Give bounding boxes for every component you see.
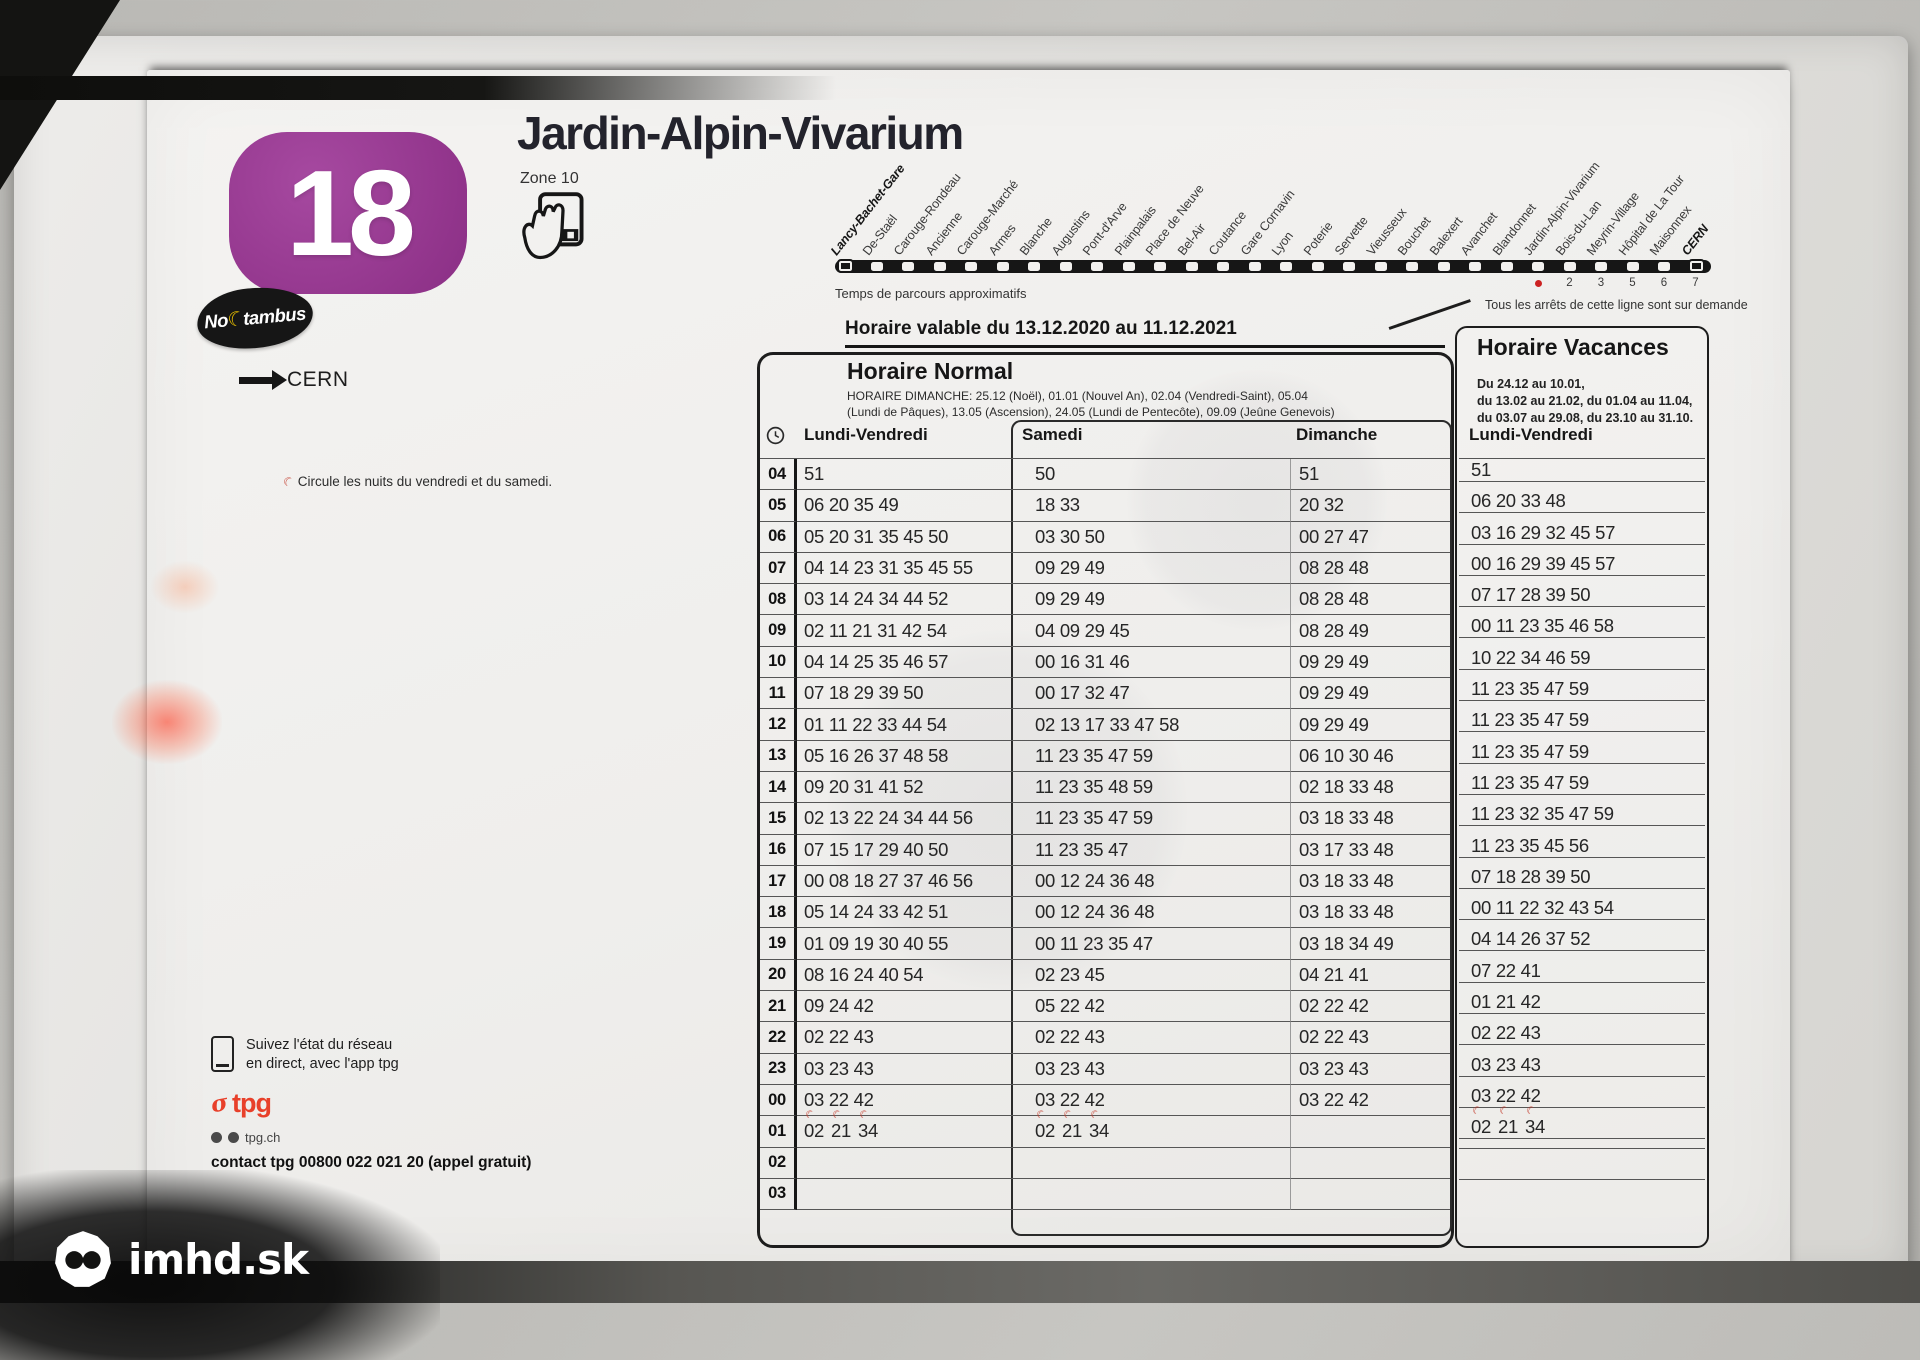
timetable-cell: 09 29 49: [1290, 678, 1450, 709]
timetable-cell: 07 15 17 29 40 50: [797, 835, 1013, 866]
route-stop-marker: [1375, 262, 1387, 271]
vacances-row: 00 11 22 32 43 54: [1459, 897, 1705, 928]
timetable-cell: 02 22 42: [1290, 991, 1450, 1022]
timetable-cell: 02 13 17 33 47 58: [1013, 709, 1290, 740]
timetable-cell: [1013, 1179, 1290, 1210]
timetable-cell: 03 22 42: [1013, 1085, 1290, 1116]
tpg-logo: σ tpg: [211, 1088, 271, 1119]
timetable-row: 1004 14 25 35 46 5700 16 31 4609 29 49: [760, 647, 1450, 678]
timetable-row: 02: [760, 1148, 1450, 1179]
timetable-cell: 07 22 41: [1459, 960, 1705, 983]
timetable-cell: 00 11 23 35 47: [1013, 928, 1290, 959]
timetable-cell: 07 18 28 39 50: [1459, 866, 1705, 889]
route-stop-label: Balexert: [1426, 214, 1464, 258]
timetable-row: 03: [760, 1179, 1450, 1210]
minute-value: ☾02: [1035, 1120, 1055, 1142]
vacances-row: 11 23 35 47 59: [1459, 678, 1705, 709]
timetable-row: 1502 13 22 24 34 44 5611 23 35 47 5903 1…: [760, 803, 1450, 834]
timetable-cell: 04: [760, 459, 797, 490]
route-stop-marker: [1564, 262, 1576, 271]
horaire-normal-title: Horaire Normal: [847, 358, 1013, 385]
timetable-cell: 02 22 43: [1013, 1022, 1290, 1053]
timetable-cell: 03 16 29 32 45 57: [1459, 522, 1705, 545]
route-stop-marker: [1343, 262, 1355, 271]
on-demand-note: Tous les arrêts de cette ligne sont sur …: [1485, 298, 1748, 312]
timetable-cell: 00 11 22 32 43 54: [1459, 897, 1705, 920]
minute-mark: [1532, 277, 1544, 290]
timetable-cell: [1459, 1148, 1705, 1149]
timetable-cell: 09 29 49: [1013, 553, 1290, 584]
route-stop-marker: [965, 262, 977, 271]
timetable-cell: 01 09 19 30 40 55: [797, 928, 1013, 959]
timetable-cell: 11 23 35 48 59: [1013, 772, 1290, 803]
minute-value: ☾34: [858, 1120, 878, 1142]
route-stop-marker: [934, 262, 946, 271]
vacances-row: 11 23 35 47 59: [1459, 709, 1705, 740]
timetable-cell: 06 20 35 49: [797, 490, 1013, 521]
timetable-cell: 03 22 42: [1459, 1085, 1705, 1108]
minute-value: ☾21: [1498, 1116, 1518, 1138]
timetable-cell: 00 12 24 36 48: [1013, 897, 1290, 928]
timetable-cell: 03 18 33 48: [1290, 866, 1450, 897]
timetable-cell: [1290, 1148, 1450, 1179]
timetable-cell: 05 22 42: [1013, 991, 1290, 1022]
app-note-line: en direct, avec l'app tpg: [246, 1055, 399, 1074]
timetable-cell: 00 27 47: [1290, 522, 1450, 553]
timetable-cell: 03 22 42: [797, 1085, 1013, 1116]
timetable-poster: 18 Jardin-Alpin-Vivarium Zone 10 No☾tamb…: [147, 70, 1790, 1273]
route-stop-label: CERN: [1678, 222, 1710, 258]
timetable-cell: 18: [760, 897, 797, 928]
timetable-cell: 11 23 35 47 59: [1013, 741, 1290, 772]
timetable-cell: 02 11 21 31 42 54: [797, 615, 1013, 646]
timetable-rows: 045150510506 20 35 4918 3320 320605 20 3…: [760, 458, 1450, 1210]
website-label: tpg.ch: [245, 1130, 280, 1145]
timetable-cell: 02 22 43: [797, 1022, 1013, 1053]
timetable-cell: 00 11 23 35 46 58: [1459, 615, 1705, 638]
travel-time-note: Temps de parcours approximatifs: [835, 286, 1026, 301]
minute-value: ☾02: [804, 1120, 824, 1142]
timetable-cell: 09 29 49: [1290, 647, 1450, 678]
timetable-cell: 08 28 49: [1290, 615, 1450, 646]
timetable-cell: 09 24 42: [797, 991, 1013, 1022]
timetable-cell: 02 22 43: [1459, 1022, 1705, 1045]
timetable-cell: 03 17 33 48: [1290, 835, 1450, 866]
timetable-cell: 05: [760, 490, 797, 521]
vacances-row: ☾02☾21☾34: [1459, 1116, 1705, 1147]
timetable-cell: ☾02☾21☾34: [1013, 1116, 1290, 1147]
timetable-cell: 04 21 41: [1290, 960, 1450, 991]
timetable-header: Lundi-Vendredi Samedi Dimanche: [760, 422, 1450, 456]
timetable-cell: 08 28 48: [1290, 584, 1450, 615]
route-stop-marker: [1123, 262, 1135, 271]
timetable-cell: 11 23 35 45 56: [1459, 835, 1705, 858]
timetable-cell: 03 18 33 48: [1290, 803, 1450, 834]
timetable-cell: 00 17 32 47: [1013, 678, 1290, 709]
timetable-cell: 11: [760, 678, 797, 709]
route-stop-label: Lyon: [1269, 229, 1296, 258]
vacances-row: 07 17 28 39 50: [1459, 584, 1705, 615]
timetable-row: 04515051: [760, 459, 1450, 490]
vacances-row: 10 22 34 46 59: [1459, 647, 1705, 678]
vacances-row: 00 16 29 39 45 57: [1459, 553, 1705, 584]
timetable-cell: 06 20 33 48: [1459, 490, 1705, 513]
website-row: tpg.ch: [211, 1130, 280, 1145]
timetable-cell: 10 22 34 46 59: [1459, 647, 1705, 670]
route-stop-marker: [1469, 262, 1481, 271]
timetable-cell: 05 14 24 33 42 51: [797, 897, 1013, 928]
note-line: HORAIRE DIMANCHE: 25.12 (Noël), 01.01 (N…: [847, 388, 1335, 404]
route-stop-marker: [1280, 262, 1292, 271]
timetable-cell: 11 23 35 47 59: [1013, 803, 1290, 834]
route-stop-marker: [1028, 262, 1040, 271]
timetable-cell: 11 23 35 47 59: [1459, 678, 1705, 701]
route-stop-label: Armes: [985, 222, 1018, 258]
vacances-row: 06 20 33 48: [1459, 490, 1705, 521]
route-stop-marker: [1312, 262, 1324, 271]
timetable-cell: 07 17 28 39 50: [1459, 584, 1705, 607]
route-stop-marker: [1501, 262, 1513, 271]
phone-icon: [211, 1036, 234, 1072]
route-line: [835, 260, 1711, 273]
route-stop-marker: [1249, 262, 1261, 271]
minute-mark: 3: [1595, 277, 1607, 289]
vacances-row: [1459, 1179, 1705, 1210]
vacances-row: 03 23 43: [1459, 1054, 1705, 1085]
timetable-cell: [1013, 1148, 1290, 1179]
imhd-goggles-icon: [52, 1228, 114, 1290]
vacances-dates: Du 24.12 au 10.01, du 13.02 au 21.02, du…: [1477, 376, 1693, 427]
timetable-cell: 51: [797, 459, 1013, 490]
route-stop-marker: [1595, 262, 1607, 271]
vacances-row: 11 23 32 35 47 59: [1459, 803, 1705, 834]
vacances-row: 11 23 35 45 56: [1459, 835, 1705, 866]
timetable-row: 1409 20 31 41 5211 23 35 48 5902 18 33 4…: [760, 772, 1450, 803]
vacances-rows: 5106 20 33 4803 16 29 32 45 5700 16 29 3…: [1459, 458, 1705, 1210]
timetable-cell: 20: [760, 960, 797, 991]
route-stop-marker: [1091, 262, 1103, 271]
timetable-cell: 13: [760, 741, 797, 772]
timetable-cell: 11 23 35 47: [1013, 835, 1290, 866]
timetable-cell: 05 20 31 35 45 50: [797, 522, 1013, 553]
column-header-samedi: Samedi: [1022, 425, 1082, 445]
route-stop-marker: [1658, 262, 1670, 271]
minute-value: ☾21: [831, 1120, 851, 1142]
timetable-cell: 00 12 24 36 48: [1013, 866, 1290, 897]
route-stop-marker: [1060, 262, 1072, 271]
timetable-cell: 03: [760, 1179, 797, 1210]
timetable-cell: ☾02☾21☾34: [797, 1116, 1013, 1147]
timetable-cell: [1459, 1179, 1705, 1180]
validity-heading: Horaire valable du 13.12.2020 au 11.12.2…: [845, 318, 1445, 348]
route-stop-label: Bel-Air: [1174, 221, 1207, 258]
route-stop-marker: [1438, 262, 1450, 271]
minute-value: ☾34: [1525, 1116, 1545, 1138]
minute-value: ☾34: [1089, 1120, 1109, 1142]
timetable-row: 0704 14 23 31 35 45 5509 29 4908 28 48: [760, 553, 1450, 584]
timetable-cell: 04 09 29 45: [1013, 615, 1290, 646]
timetable-cell: 20 32: [1290, 490, 1450, 521]
route-stop-marker: [871, 262, 883, 271]
timetable-cell: 10: [760, 647, 797, 678]
timetable-cell: 01: [760, 1116, 797, 1147]
route-stop-marker: [1217, 262, 1229, 271]
vacances-row: 01 21 42: [1459, 991, 1705, 1022]
timetable-row: 1607 15 17 29 40 5011 23 35 4703 17 33 4…: [760, 835, 1450, 866]
vacances-row: 03 22 42: [1459, 1085, 1705, 1116]
route-stops: Lancy-Bachet-GareDe-StaëlCarouge-Rondeau…: [835, 120, 1735, 258]
timetable-row: 0506 20 35 4918 3320 32: [760, 490, 1450, 521]
minute-value: ☾02: [1471, 1116, 1491, 1138]
timetable-cell: 03 23 43: [797, 1054, 1013, 1085]
timetable-cell: 23: [760, 1054, 797, 1085]
timetable-row: 0803 14 24 34 44 5209 29 4908 28 48: [760, 584, 1450, 615]
timetable-cell: 04 14 23 31 35 45 55: [797, 553, 1013, 584]
route-stop-marker: [1154, 262, 1166, 271]
timetable-cell: 00 16 29 39 45 57: [1459, 553, 1705, 576]
app-note-line: Suivez l'état du réseau: [246, 1036, 399, 1055]
timetable-cell: 04 14 26 37 52: [1459, 928, 1705, 951]
minute-value: ☾21: [1062, 1120, 1082, 1142]
timetable-cell: 07 18 29 39 50: [797, 678, 1013, 709]
timetable-cell: 03 18 33 48: [1290, 897, 1450, 928]
timetable-cell: 08 28 48: [1290, 553, 1450, 584]
timetable-cell: 03 18 34 49: [1290, 928, 1450, 959]
timetable-row: 01☾02☾21☾34☾02☾21☾34: [760, 1116, 1450, 1147]
timetable-cell: 15: [760, 803, 797, 834]
timetable-cell: 03 23 43: [1013, 1054, 1290, 1085]
timetable-cell: 02 13 22 24 34 44 56: [797, 803, 1013, 834]
vacances-row: 07 18 28 39 50: [1459, 866, 1705, 897]
vacances-row: 02 22 43: [1459, 1022, 1705, 1053]
route-stop-marker: [1532, 262, 1544, 271]
timetable-row: 2109 24 4205 22 4202 22 42: [760, 991, 1450, 1022]
timetable-row: 0605 20 31 35 45 5003 30 5000 27 47: [760, 522, 1450, 553]
timetable-cell: 02: [760, 1148, 797, 1179]
timetable-cell: 03 30 50: [1013, 522, 1290, 553]
timetable-cell: 16: [760, 835, 797, 866]
app-note: Suivez l'état du réseau en direct, avec …: [246, 1036, 399, 1074]
vacances-row: 11 23 35 47 59: [1459, 772, 1705, 803]
timetable-cell: 03 23 43: [1459, 1054, 1705, 1077]
minute-mark: 5: [1627, 277, 1639, 289]
column-header-vacances-lundi-vendredi: Lundi-Vendredi: [1469, 425, 1593, 445]
timetable-row: 2202 22 4302 22 4302 22 43: [760, 1022, 1450, 1053]
timetable-cell: 03 23 43: [1290, 1054, 1450, 1085]
route-stop-marker: [1186, 262, 1198, 271]
column-header-lundi-vendredi: Lundi-Vendredi: [804, 425, 928, 445]
minute-mark: 7: [1690, 277, 1702, 289]
timetable-cell: 11 23 35 47 59: [1459, 772, 1705, 795]
vacances-row: 07 22 41: [1459, 960, 1705, 991]
vacances-row: 51: [1459, 459, 1705, 490]
route-stop-marker: [1690, 261, 1703, 271]
timetable-cell: 51: [1290, 459, 1450, 490]
timetable-cell: 22: [760, 1022, 797, 1053]
route-stop-marker: [997, 262, 1009, 271]
timetable-cell: [1290, 1116, 1450, 1147]
timetable-cell: [797, 1148, 1013, 1179]
timetable-row: 1201 11 22 33 44 5402 13 17 33 47 5809 2…: [760, 709, 1450, 740]
timetable-cell: 21: [760, 991, 797, 1022]
app-info-block: Suivez l'état du réseau en direct, avec …: [211, 1036, 399, 1074]
minute-mark: 2: [1564, 277, 1576, 289]
timetable-cell: 07: [760, 553, 797, 584]
vacances-row: [1459, 1148, 1705, 1179]
timetable-cell: 09 20 31 41 52: [797, 772, 1013, 803]
timetable-cell: 06: [760, 522, 797, 553]
route-stop-label: Servette: [1332, 214, 1371, 258]
timetable-cell: 12: [760, 709, 797, 740]
timetable-cell: 09 29 49: [1290, 709, 1450, 740]
tpg-logo-symbol: σ: [209, 1089, 230, 1119]
timetable-row: 2008 16 24 40 5402 23 4504 21 41: [760, 960, 1450, 991]
timetable-cell: 02 22 43: [1290, 1022, 1450, 1053]
timetable-cell: 02 18 33 48: [1290, 772, 1450, 803]
timetable-cell: 11 23 32 35 47 59: [1459, 803, 1705, 826]
vacances-row: 11 23 35 47 59: [1459, 741, 1705, 772]
vacances-row: 00 11 23 35 46 58: [1459, 615, 1705, 646]
timetable-cell: 02 23 45: [1013, 960, 1290, 991]
timetable-cell: [797, 1179, 1013, 1210]
timetable-cell: 00 08 18 27 37 46 56: [797, 866, 1013, 897]
timetable-cell: 11 23 35 47 59: [1459, 741, 1705, 764]
timetable-row: 1305 16 26 37 48 5811 23 35 47 5906 10 3…: [760, 741, 1450, 772]
timetable-cell: 08 16 24 40 54: [797, 960, 1013, 991]
timetable-row: 1107 18 29 39 5000 17 32 4709 29 49: [760, 678, 1450, 709]
watermark: imhd.sk: [52, 1228, 308, 1290]
clock-icon: [766, 426, 785, 450]
tpg-logo-text: tpg: [232, 1088, 271, 1119]
watermark-text: imhd.sk: [128, 1235, 308, 1284]
timetable-cell: 00 16 31 46: [1013, 647, 1290, 678]
timetable-cell: 01 21 42: [1459, 991, 1705, 1014]
timetable-cell: 03 22 42: [1290, 1085, 1450, 1116]
route-stop-marker: [1627, 262, 1639, 271]
horaire-vacances-title: Horaire Vacances: [1477, 334, 1669, 361]
timetable-cell: 06 10 30 46: [1290, 741, 1450, 772]
route-stop-marker: [839, 261, 852, 271]
minute-mark: 6: [1658, 277, 1670, 289]
timetable-cell: 05 16 26 37 48 58: [797, 741, 1013, 772]
frame-top-shadow: [0, 76, 880, 100]
timetable-cell: 19: [760, 928, 797, 959]
route-stop-label: Poterie: [1300, 219, 1335, 258]
timetable-cell: 09: [760, 615, 797, 646]
timetable-cell: [1290, 1179, 1450, 1210]
timetable-cell: 11 23 35 47 59: [1459, 709, 1705, 732]
vacances-row: 03 16 29 32 45 57: [1459, 522, 1705, 553]
timetable-cell: 50: [1013, 459, 1290, 490]
timetable-cell: 17: [760, 866, 797, 897]
social-icon: [211, 1132, 222, 1143]
timetable-cell: 51: [1459, 459, 1705, 482]
timetable-row: 2303 23 4303 23 4303 23 43: [760, 1054, 1450, 1085]
route-stop-marker: [1406, 262, 1418, 271]
timetable-row: 1901 09 19 30 40 5500 11 23 35 4703 18 3…: [760, 928, 1450, 959]
timetable-cell: 08: [760, 584, 797, 615]
timetable-cell: 04 14 25 35 46 57: [797, 647, 1013, 678]
timetable-cell: ☾02☾21☾34: [1459, 1116, 1705, 1139]
route-stop-label: Blanche: [1017, 215, 1055, 258]
social-icon: [228, 1132, 239, 1143]
column-header-dimanche: Dimanche: [1296, 425, 1377, 445]
timetable-cell: 09 29 49: [1013, 584, 1290, 615]
timetable-cell: 18 33: [1013, 490, 1290, 521]
timetable-cell: 01 11 22 33 44 54: [797, 709, 1013, 740]
timetable-cell: 14: [760, 772, 797, 803]
timetable-row: 1805 14 24 33 42 5100 12 24 36 4803 18 3…: [760, 897, 1450, 928]
timetable-row: 1700 08 18 27 37 46 5600 12 24 36 4803 1…: [760, 866, 1450, 897]
vacances-date-line: Du 24.12 au 10.01,: [1477, 376, 1693, 393]
timetable-cell: 03 14 24 34 44 52: [797, 584, 1013, 615]
vacances-date-line: du 13.02 au 21.02, du 01.04 au 11.04,: [1477, 393, 1693, 410]
timetable-cell: 00: [760, 1085, 797, 1116]
horaire-dimanche-note: HORAIRE DIMANCHE: 25.12 (Noël), 01.01 (N…: [847, 388, 1335, 420]
note-line: (Lundi de Pâques), 13.05 (Ascension), 24…: [847, 404, 1335, 420]
timetable-row: 0902 11 21 31 42 5404 09 29 4508 28 49: [760, 615, 1450, 646]
route-stop-marker: [902, 262, 914, 271]
vacances-row: 04 14 26 37 52: [1459, 928, 1705, 959]
